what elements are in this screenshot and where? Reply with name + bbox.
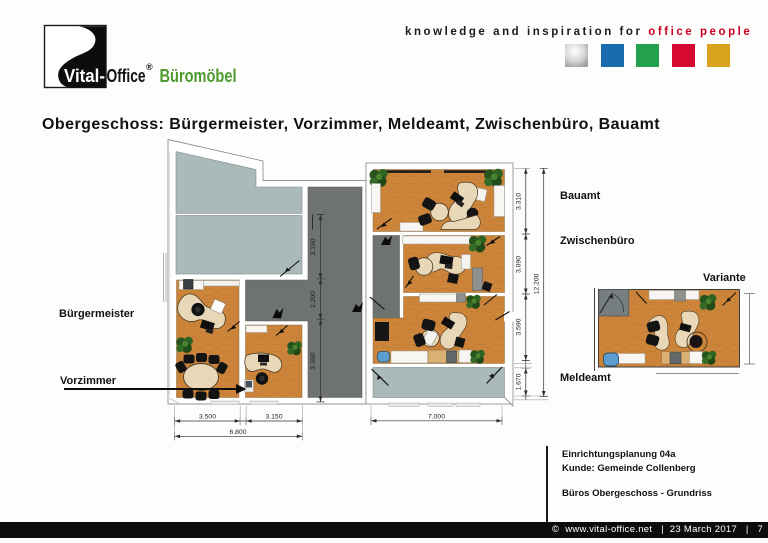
svg-text:12.200: 12.200 [534,273,541,294]
svg-text:3.150: 3.150 [265,414,282,421]
svg-text:3.590: 3.590 [516,318,523,335]
svg-text:3.990: 3.990 [310,352,317,369]
svg-text:3.090: 3.090 [516,256,523,273]
svg-text:2.200: 2.200 [310,291,317,308]
svg-text:1.670: 1.670 [516,373,523,390]
svg-text:7.000: 7.000 [428,414,445,421]
svg-text:3.500: 3.500 [199,414,216,421]
svg-text:3.190: 3.190 [310,238,317,255]
svg-text:6.800: 6.800 [229,429,246,436]
svg-text:3.310: 3.310 [516,193,523,210]
